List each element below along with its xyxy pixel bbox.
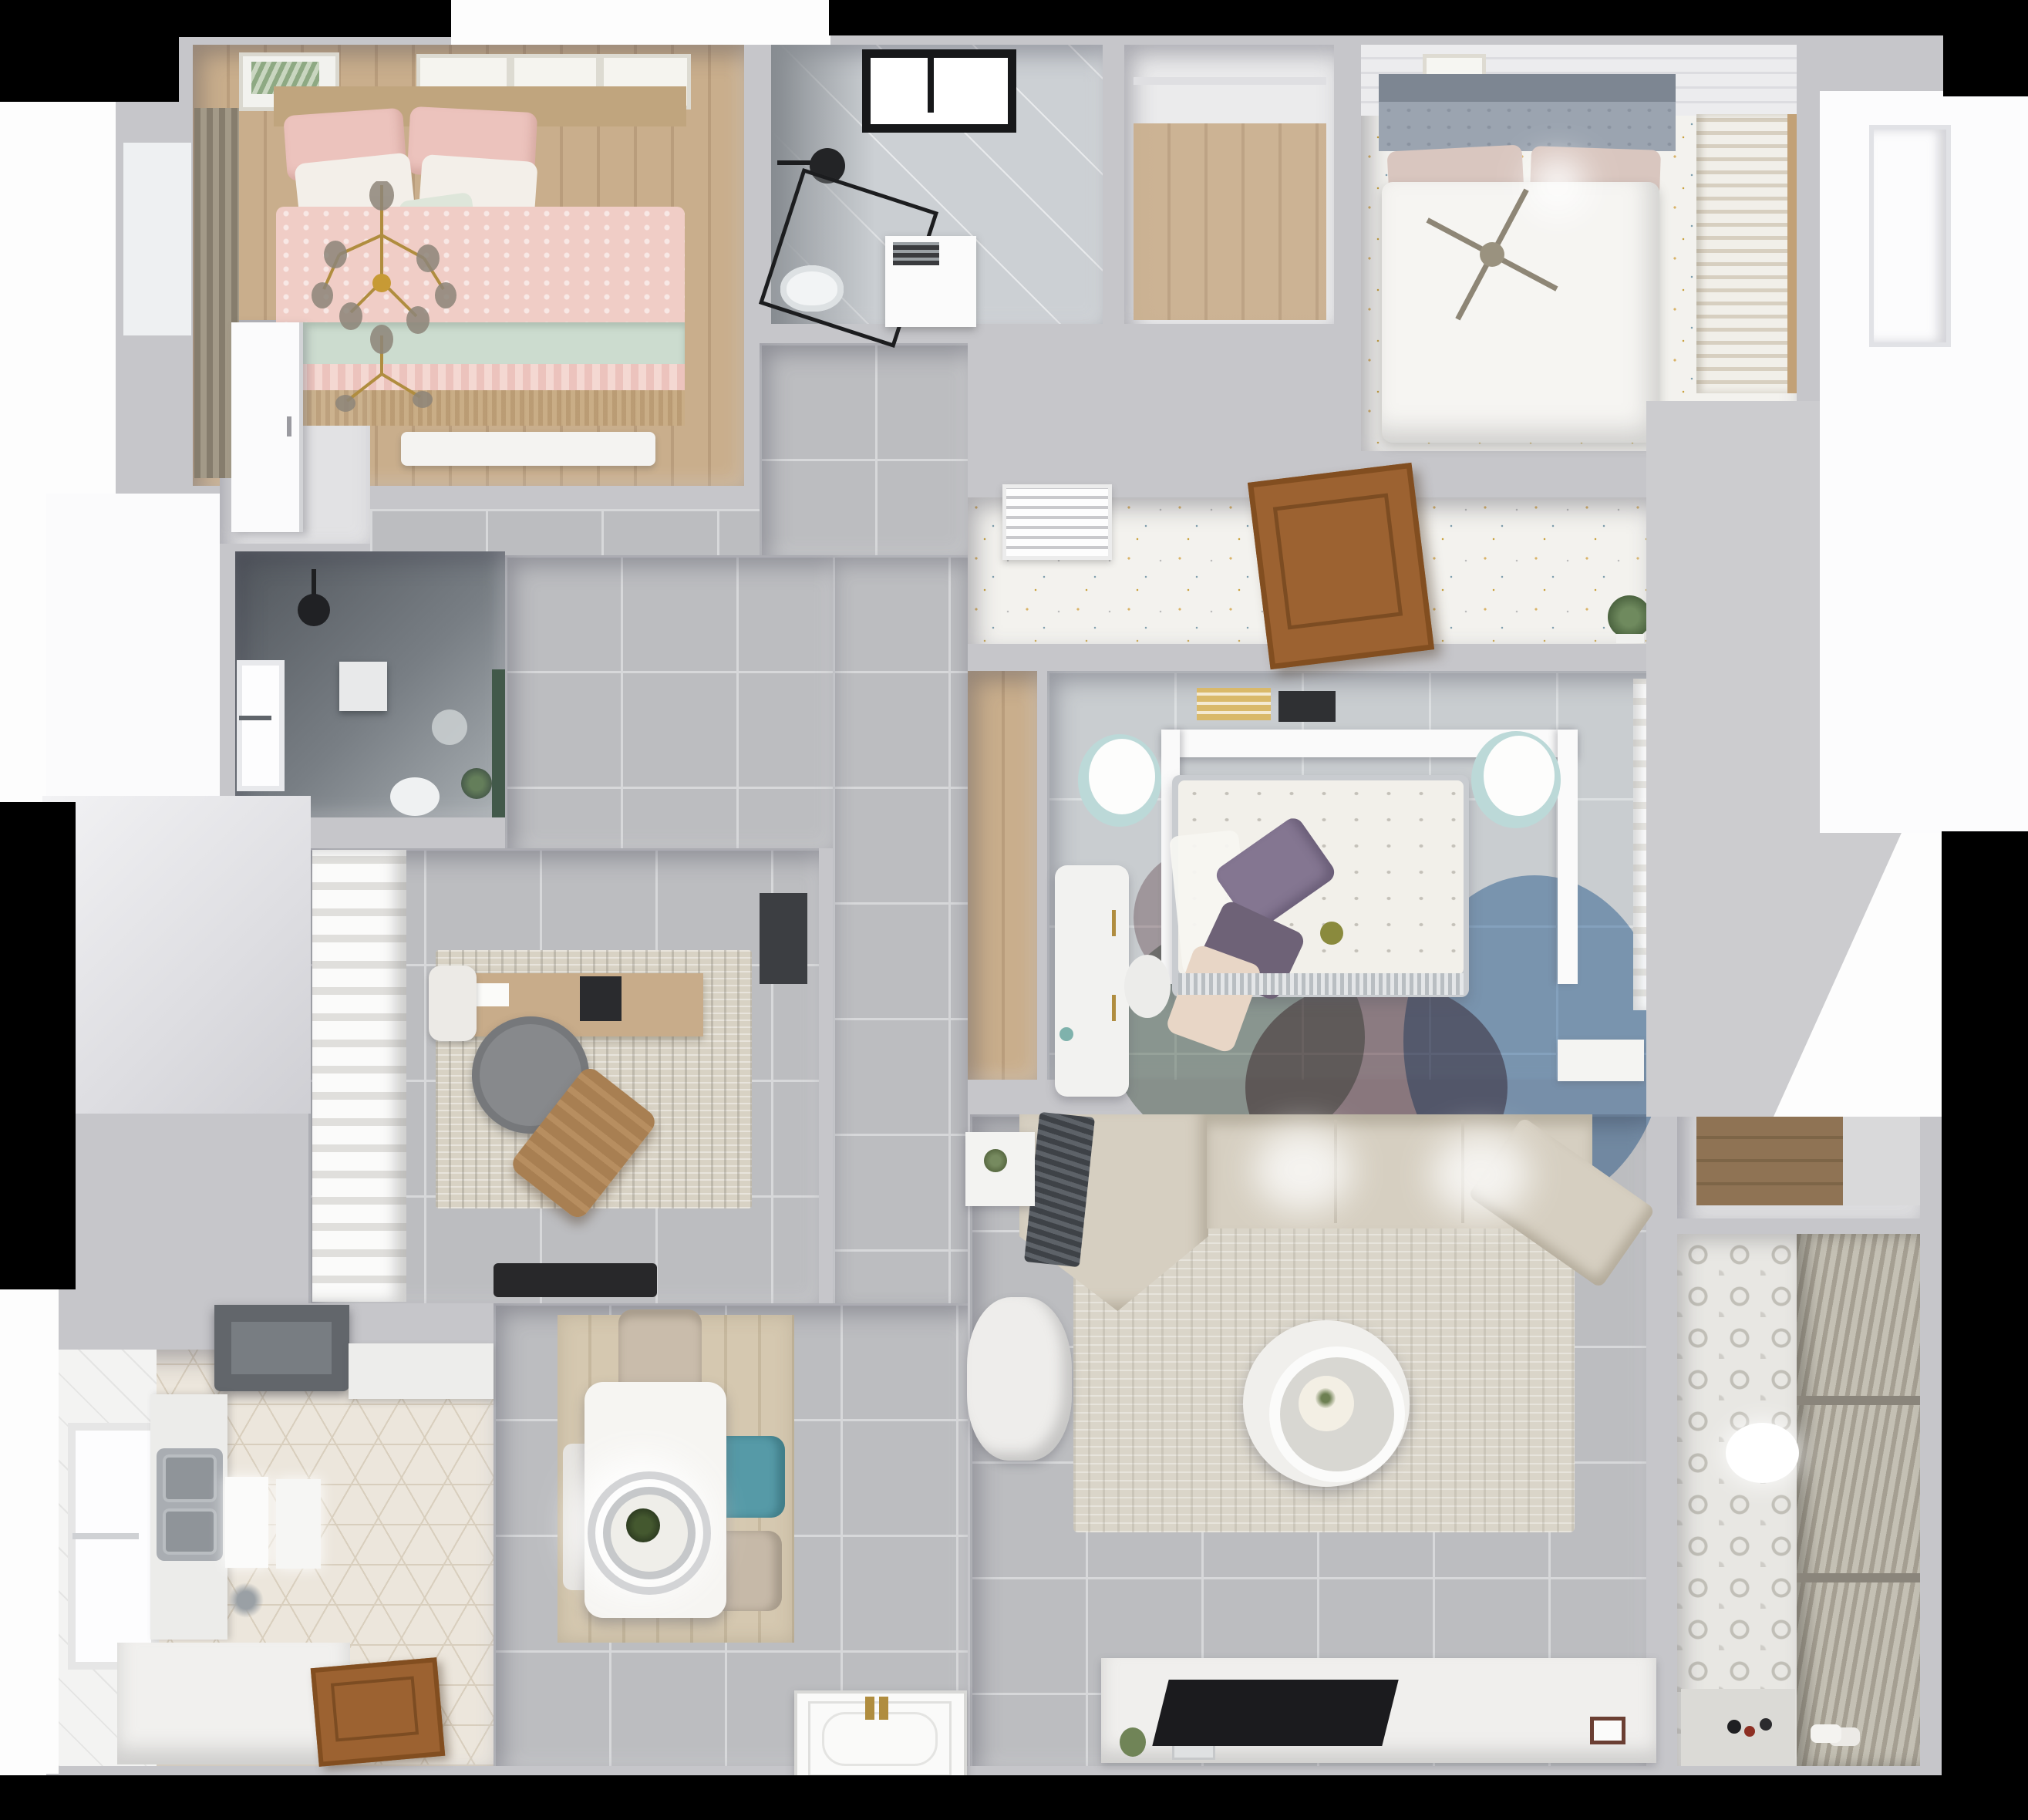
vanity-handle-2 [1112, 995, 1116, 1021]
kitchen-faucet [228, 1582, 264, 1618]
roller-blinds [1797, 1234, 1920, 1766]
window-mullion [928, 54, 934, 113]
vanity-handle-1 [1112, 910, 1116, 936]
balcony-pattern-wall [1677, 1234, 1797, 1766]
corridor-plant [1608, 595, 1651, 639]
bg-black-top-left-corner [0, 0, 179, 102]
bath2-window-mullion [239, 716, 271, 720]
sofa-lamp-glow-1 [1253, 1127, 1353, 1212]
bath2-toilet [390, 777, 440, 816]
black-frame-window [862, 49, 1016, 133]
ruffle-curtains [312, 850, 406, 1302]
cabinet-door-lit-2 [276, 1479, 321, 1569]
bg-black-right-column [1942, 831, 2028, 1820]
ac-vent-grille [1002, 484, 1112, 560]
master-headboard-top [1379, 74, 1676, 105]
blinds-bar-2 [1797, 1573, 1920, 1582]
white-door-exterior [1869, 125, 1951, 347]
pendant-centerpiece-plant [626, 1508, 660, 1542]
sink-basin-1 [163, 1454, 217, 1502]
study-door-mat [494, 1263, 657, 1297]
sofa-lamp-glow-2 [1430, 1132, 1531, 1217]
exterior-white-bottom-left [0, 1289, 59, 1774]
vanity-stool [1124, 955, 1171, 1018]
bed-center-fringe [1178, 973, 1464, 995]
bg-black-left-strip [0, 802, 76, 1289]
balcony-toy-1 [1727, 1720, 1741, 1734]
range-hood-vent [231, 1322, 332, 1374]
front-door-handles [865, 1697, 874, 1720]
louver-wardrobe [1696, 114, 1797, 393]
cabinet-door-lit-1 [225, 1477, 268, 1568]
kitchen-wood-door-panel [331, 1676, 419, 1741]
toilet-ensuite [780, 265, 844, 312]
desk-chair [429, 966, 477, 1041]
corridor-plant-pot [1616, 634, 1644, 643]
window-bay-west [123, 143, 191, 335]
wood-door-panel [1273, 493, 1403, 629]
armchair [967, 1297, 1072, 1461]
vestibule-door-handle [287, 416, 291, 436]
kitchen-window [68, 1423, 159, 1670]
balcony-ceiling-light [1726, 1423, 1799, 1483]
floorplan-render [0, 0, 2028, 1820]
vanity-bottle [1059, 1027, 1073, 1041]
hall-upper-west [370, 509, 760, 555]
shelf-books-yellow [1197, 688, 1271, 720]
closet-shelf-line [1134, 77, 1326, 85]
hall-mid [505, 555, 833, 848]
wall-corridor-north-right [1419, 451, 1646, 497]
nightstand-white [1558, 1040, 1644, 1081]
bg-black-top-right-band [829, 0, 2028, 35]
pouf-right-top [1484, 736, 1555, 816]
study-wall-panel [760, 893, 807, 984]
tv-panel [1152, 1680, 1398, 1746]
wardrobe-wood-edge [1787, 114, 1797, 393]
bath2-cabinet [339, 662, 387, 711]
bath2-mirror [432, 709, 467, 745]
bath2-plant [461, 768, 492, 799]
vanity-desk [1055, 865, 1129, 1097]
storage-nook-shelf [1843, 1101, 1920, 1205]
bg-black-bottom-band [0, 1775, 2028, 1820]
bg-black-top-right-corner [1943, 0, 2028, 96]
console-decor-right [1590, 1717, 1625, 1744]
desk-laptop [580, 976, 622, 1021]
exterior-white-left-mid [46, 494, 220, 844]
balcony-toy-3 [1760, 1718, 1772, 1731]
shelf-book-dark [1278, 691, 1336, 722]
pouf-left-top [1089, 739, 1155, 814]
side-table-plant [984, 1149, 1007, 1172]
hall-upper [760, 343, 968, 555]
duvet-blossom [1320, 922, 1343, 945]
gold-chandelier [293, 181, 470, 413]
exterior-white-top-gap [451, 14, 830, 45]
kitchen-counter-top [349, 1343, 494, 1399]
shower-unit-panel [893, 242, 939, 265]
desk-paper [477, 983, 509, 1006]
console-green-dish [1120, 1727, 1146, 1757]
kitchen-window-mullion [72, 1533, 139, 1539]
bath2-green-wall [492, 669, 505, 817]
closet-wood-strip [968, 671, 1037, 1080]
bath2-window [237, 660, 285, 791]
exterior-gray-wedge [42, 796, 311, 1114]
sink-basin-2 [163, 1508, 217, 1555]
blinds-bar-1 [1797, 1396, 1920, 1405]
bath2-shower-head [298, 594, 330, 626]
ceiling-fan [1411, 174, 1573, 335]
coffee-table-sprig [1316, 1388, 1336, 1408]
balcony-slippers [1811, 1724, 1841, 1743]
white-door-vestibule [231, 322, 303, 532]
hall-vertical [833, 555, 968, 1303]
master-headboard-tufted [1379, 102, 1676, 151]
headboard-shelf-right [1558, 730, 1578, 984]
front-door-ornament-inner [822, 1712, 938, 1766]
closet-wood-floor [1134, 123, 1326, 320]
foot-bench [401, 432, 655, 466]
balcony-toy-2 [1744, 1726, 1755, 1737]
